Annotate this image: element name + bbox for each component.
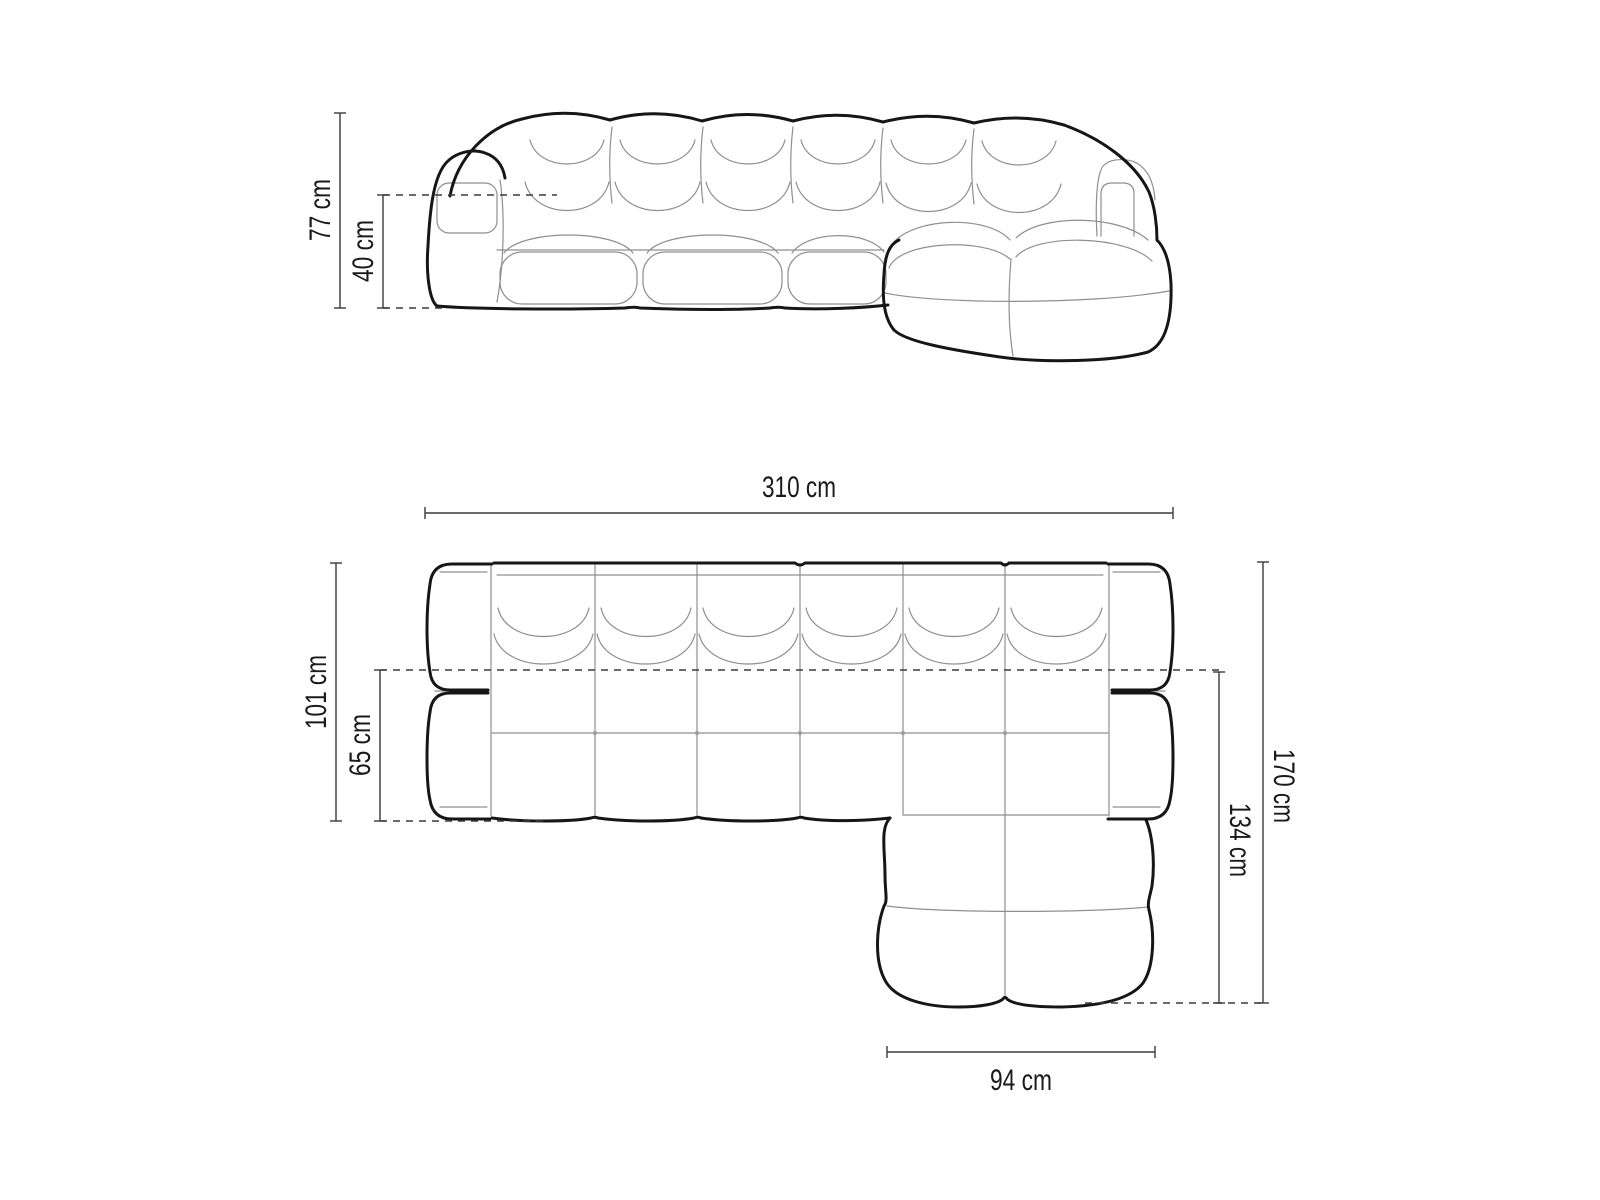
lumbar-tuft-scallop xyxy=(886,183,971,212)
back-scallop xyxy=(703,608,794,637)
seat-bottom-outline xyxy=(437,305,888,310)
chaise-waist-seam xyxy=(887,906,1148,911)
back-cushion-seam xyxy=(701,127,703,203)
chaise-length-label: 134 cm xyxy=(1223,803,1256,877)
chaise-width-label: 94 cm xyxy=(990,1064,1052,1097)
left-arm-upper-outline xyxy=(427,564,492,690)
seat-depth-label: 65 cm xyxy=(344,714,377,776)
lumbar-tuft-scallop xyxy=(796,182,880,211)
top-view-seams xyxy=(435,565,1165,998)
back-cushion-seam xyxy=(791,127,793,203)
back-tuft-scallop xyxy=(891,140,966,164)
right-arm-upper-outline xyxy=(1108,564,1173,690)
lumbar-scallop xyxy=(597,634,695,664)
chaise-mid-seam xyxy=(885,291,1169,301)
seat-cushion-front xyxy=(788,252,886,304)
seat-cushion-front xyxy=(500,252,637,304)
chaise-cushion-crest xyxy=(889,245,1010,268)
back-tuft-scallop xyxy=(711,140,785,164)
right-arm-lower-outline xyxy=(1108,693,1173,819)
back-scallop xyxy=(806,608,897,637)
front-view-seams xyxy=(437,127,1169,356)
lumbar-scallop xyxy=(494,634,593,664)
body-depth-label: 101 cm xyxy=(300,655,333,729)
sofa-dimension-diagram: 77 cm 40 cm xyxy=(0,0,1600,1200)
left-arm-lower-outline xyxy=(427,693,490,819)
rear-seat-crest xyxy=(1016,220,1148,240)
back-cushion-seam xyxy=(610,127,612,203)
diagram-canvas: 77 cm 40 cm xyxy=(0,0,1600,1200)
lumbar-tuft-scallop xyxy=(706,182,790,211)
back-cushion-seam xyxy=(972,129,974,204)
total-depth-label: 170 cm xyxy=(1267,749,1300,823)
lumbar-tuft-scallop xyxy=(525,182,609,211)
backrest-top-outline xyxy=(522,113,1064,125)
width-label: 310 cm xyxy=(762,471,836,504)
seat-front-outline xyxy=(492,817,890,821)
seat-cushion-front xyxy=(643,252,782,304)
rear-seat-crest xyxy=(893,222,1010,243)
back-scallop xyxy=(498,608,589,637)
seam-node xyxy=(593,731,597,735)
back-edge-outline xyxy=(494,563,1106,565)
right-arm-inner-seam xyxy=(1101,183,1134,236)
lumbar-scallop xyxy=(699,634,798,664)
seat-height-label: 40 cm xyxy=(347,220,380,282)
back-cushion-seam xyxy=(881,128,883,203)
back-scallop xyxy=(601,608,691,637)
back-scallop xyxy=(909,608,999,637)
seam-node xyxy=(1003,731,1007,735)
chaise-outline-plan xyxy=(878,818,1154,1007)
back-tuft-scallop xyxy=(982,141,1056,165)
top-view: 310 cm 101 cm 65 cm 170 cm 134 cm 94 cm xyxy=(300,471,1300,1097)
left-arm-top-seam xyxy=(437,183,497,233)
back-tuft-scallop xyxy=(801,140,875,164)
lumbar-scallop xyxy=(1007,634,1106,664)
right-arm-roll-seam xyxy=(1096,160,1155,236)
chaise-cushion-crest xyxy=(1016,240,1152,261)
back-tuft-scallop xyxy=(620,140,695,164)
seam-node xyxy=(901,731,905,735)
chaise-outline-front xyxy=(883,240,1171,361)
seam-node xyxy=(695,731,699,735)
left-shoulder-outline xyxy=(450,119,522,196)
front-view: 77 cm 40 cm xyxy=(304,113,1171,361)
lumbar-tuft-scallop xyxy=(615,182,700,211)
lumbar-scallop xyxy=(905,634,1003,664)
lumbar-scallop xyxy=(802,634,901,664)
height-label: 77 cm xyxy=(304,179,337,241)
back-tuft-scallop xyxy=(530,140,604,164)
back-scallop xyxy=(1011,608,1102,637)
chaise-center-seam xyxy=(1009,259,1013,356)
seam-node xyxy=(798,731,802,735)
lumbar-tuft-scallop xyxy=(977,184,1061,213)
